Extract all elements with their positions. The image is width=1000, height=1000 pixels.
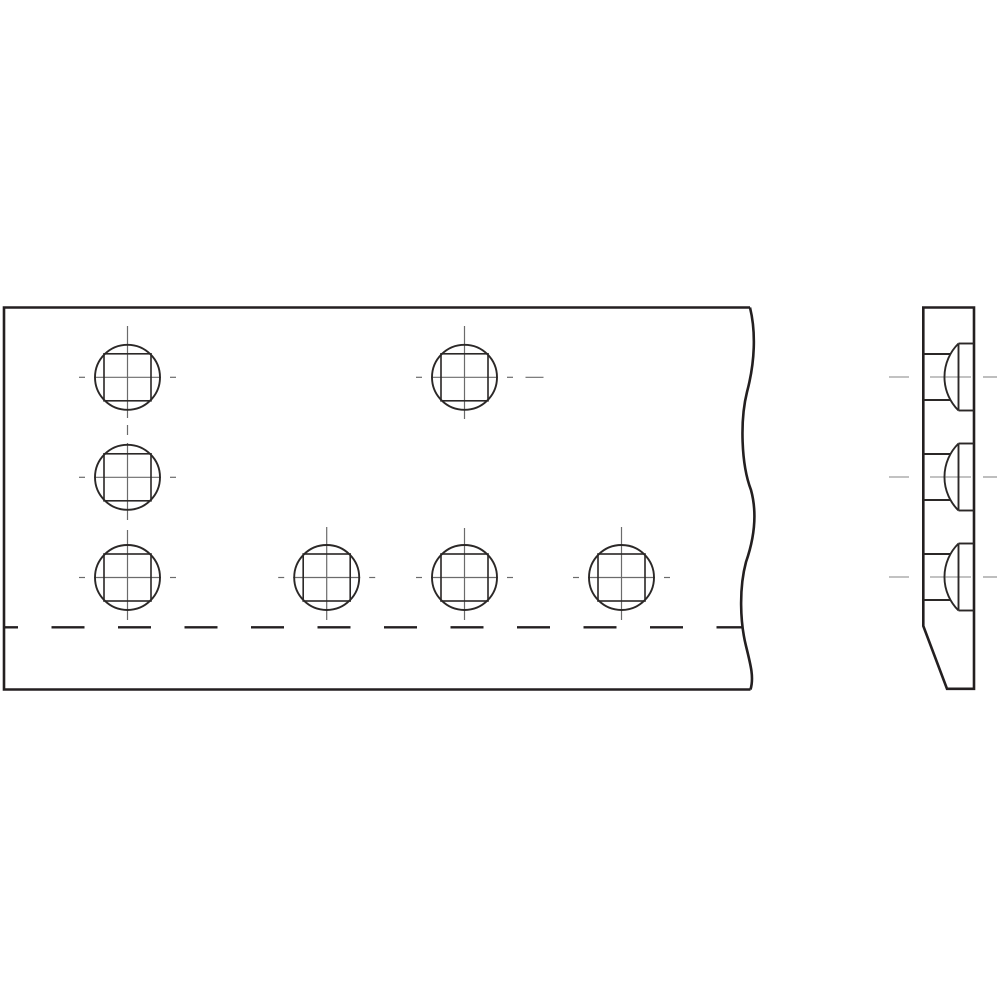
carriage-bolt-hole-front <box>79 443 176 520</box>
carriage-bolt-hole-front <box>79 326 176 435</box>
side-view <box>889 308 997 689</box>
carriage-bolt-hole-front <box>79 530 176 620</box>
carriage-bolt-hole-front <box>416 528 513 620</box>
front-view <box>4 308 754 690</box>
carriage-bolt-hole-front <box>416 326 544 419</box>
break-line <box>741 308 754 690</box>
carriage-bolt-hole-front <box>278 527 375 620</box>
plate-outline <box>4 308 751 690</box>
technical-drawing-canvas <box>0 0 1000 1000</box>
drawing-page <box>0 0 1000 1000</box>
carriage-bolt-hole-front <box>573 527 670 620</box>
